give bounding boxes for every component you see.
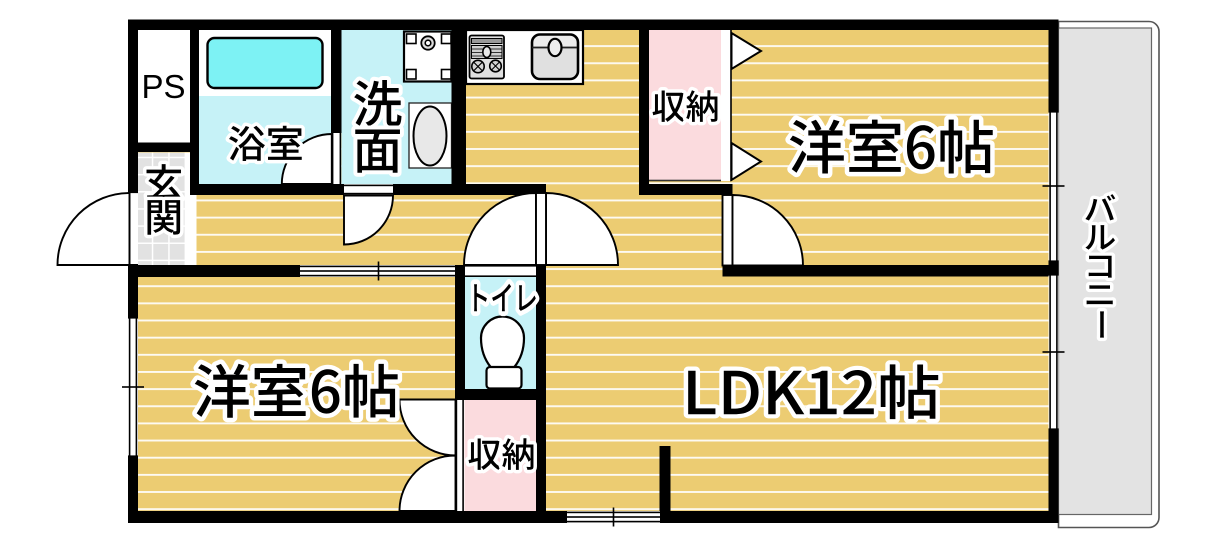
- svg-text:PS: PS: [141, 68, 185, 105]
